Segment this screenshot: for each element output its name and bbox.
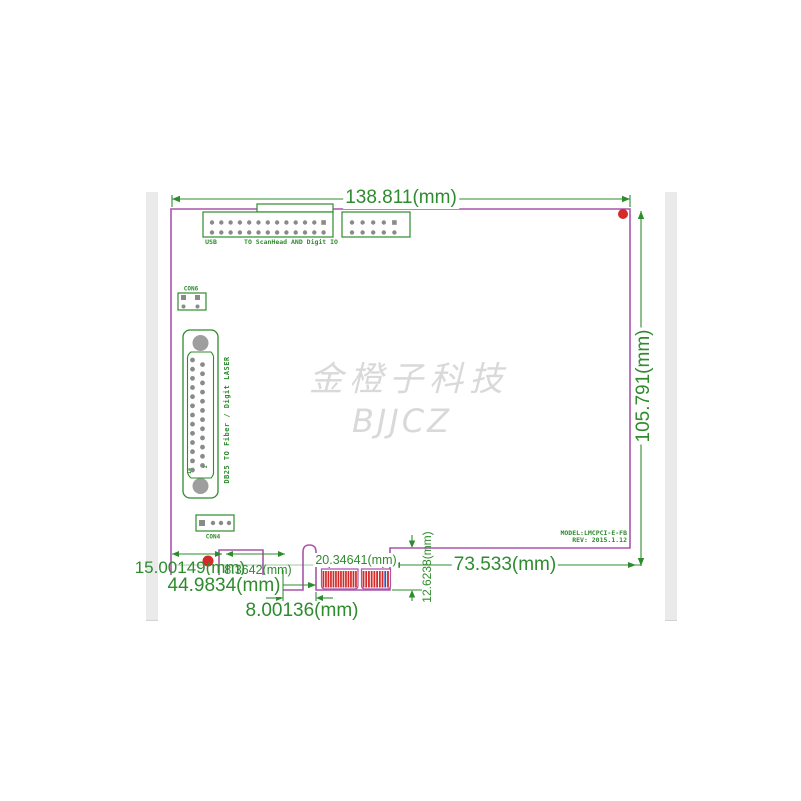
label-usb: USB (205, 238, 217, 246)
label-db25: DB25 TO Fiber / Digit LASER (223, 356, 231, 483)
dim-edge-to-key: 44.9834(mm) (166, 575, 283, 597)
dim-key-width: 8.00136(mm) (246, 600, 359, 622)
pcb-dimension-drawing: 金橙子科技 BJJCZ (0, 0, 801, 801)
label-con6: CON6 (184, 286, 198, 293)
top-edge-tab (257, 204, 333, 212)
dim-finger-height: 12.6238(mm) (420, 531, 434, 602)
dim-finger-span: 20.34641(mm) (313, 553, 398, 567)
db25-mount-hole-top (193, 335, 209, 351)
drawing-canvas (0, 0, 801, 801)
revision: REV: 2015.1.12 (560, 537, 627, 544)
label-pin14: 14 (187, 468, 193, 474)
dim-finger-to-edge: 73.533(mm) (452, 554, 558, 576)
finger-group-1 (322, 569, 359, 589)
label-pin1: 1 (203, 465, 209, 468)
marker-dot-top-right (618, 209, 628, 219)
dim-board-width: 138.811(mm) (343, 187, 459, 209)
title-block: MODEL:LMCPCI-E-FB REV: 2015.1.12 (560, 530, 627, 544)
label-scanhead: TO ScanHead AND Digit IO (244, 238, 338, 246)
label-con4: CON4 (206, 534, 220, 541)
dim-board-height: 105.791(mm) (633, 328, 655, 445)
db25-mount-hole-bottom (193, 478, 209, 494)
